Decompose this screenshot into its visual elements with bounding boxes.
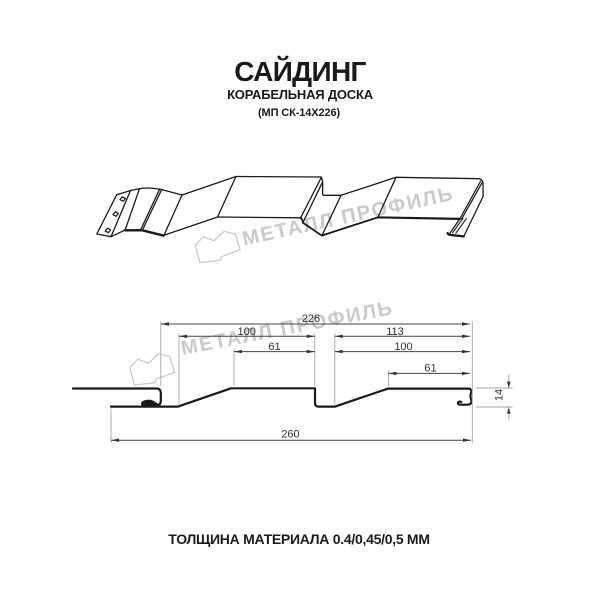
svg-text:260: 260 (281, 429, 299, 441)
svg-text:61: 61 (424, 363, 436, 375)
svg-text:100: 100 (394, 341, 412, 353)
svg-text:ТОЛЩИНА МАТЕРИАЛА 0.4/0,45/0,5: ТОЛЩИНА МАТЕРИАЛА 0.4/0,45/0,5 ММ (168, 531, 429, 547)
svg-text:226: 226 (302, 313, 320, 325)
svg-text:100: 100 (238, 326, 256, 338)
svg-text:КОРАБЕЛЬНАЯ ДОСКА: КОРАБЕЛЬНАЯ ДОСКА (227, 87, 374, 102)
svg-text:(МП СК-14Х226): (МП СК-14Х226) (258, 107, 340, 119)
svg-text:113: 113 (386, 326, 404, 338)
svg-text:61: 61 (268, 341, 280, 353)
svg-text:14: 14 (494, 389, 506, 401)
svg-text:САЙДИНГ: САЙДИНГ (234, 55, 366, 87)
svg-text:МЕТАЛЛ ПРОФИЛЬ: МЕТАЛЛ ПРОФИЛЬ (179, 297, 395, 360)
